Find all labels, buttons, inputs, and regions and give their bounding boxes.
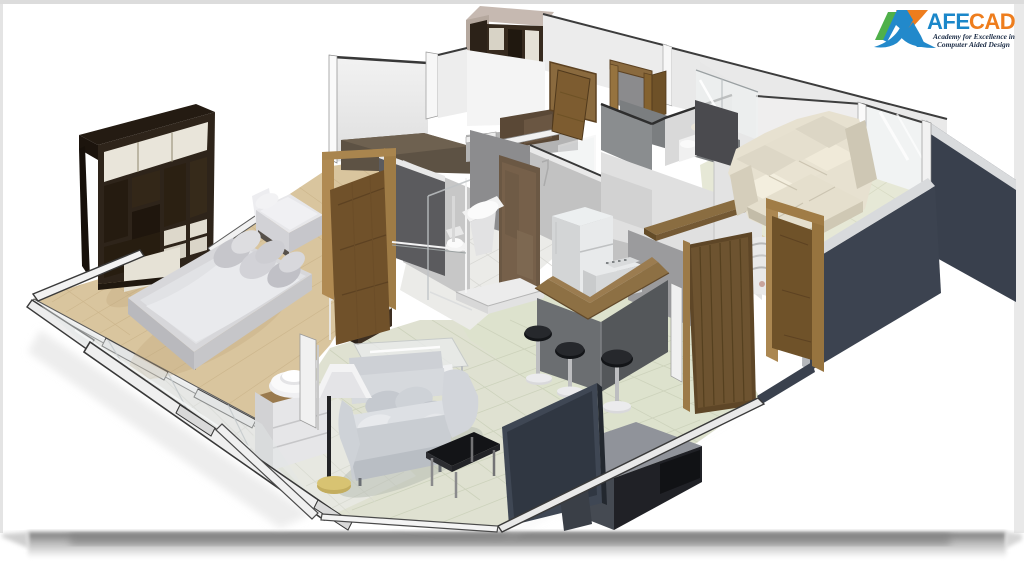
svg-text:CAD: CAD (969, 9, 1015, 34)
svg-text:Computer Aided Design: Computer Aided Design (937, 40, 1010, 49)
svg-text:AFE: AFE (927, 9, 970, 34)
